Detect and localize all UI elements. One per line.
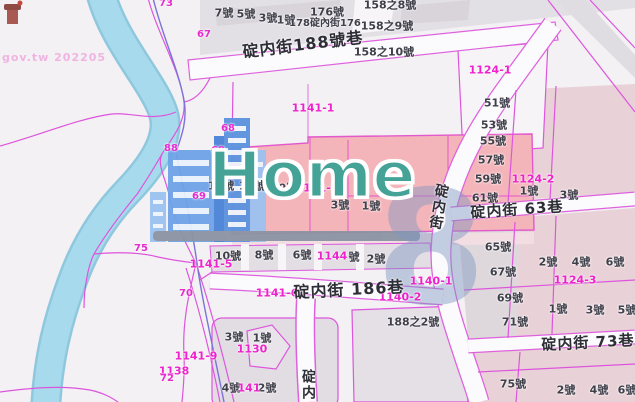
- logo-chimney-icon: [0, 0, 26, 28]
- road-number-label: 70: [179, 289, 193, 299]
- house-number-label: 158之8號: [364, 0, 417, 11]
- house-number-label: 3號: [259, 13, 278, 24]
- gov-attribution-watermark: gov.tw 202205: [2, 51, 106, 64]
- house-number-label: 8號: [255, 250, 274, 261]
- house-number-label: 55號: [480, 136, 506, 147]
- house-number-label: 3號: [225, 332, 244, 343]
- house-number-label: 3號: [586, 305, 605, 316]
- house-number-label: 1號: [520, 186, 539, 197]
- house-number-label: 2號: [557, 385, 576, 396]
- street-name-label: 碇内街 63巷: [470, 199, 564, 220]
- house-number-label: 6號: [618, 385, 635, 396]
- parcel-number-label: 1144: [317, 251, 348, 262]
- house-number-label: 59號: [475, 174, 501, 185]
- house-number-label: 5號: [618, 305, 635, 316]
- road-number-label: 68: [221, 124, 235, 134]
- house-number-label: 71號: [502, 317, 528, 328]
- house-number-label: 188之2號: [387, 317, 440, 328]
- watermark-brand-text: Home: [208, 144, 416, 208]
- road-number-label: 69: [192, 192, 206, 202]
- house-number-label: 7號: [215, 8, 234, 19]
- house-number-label: 6號: [606, 257, 625, 268]
- parcel-number-label: 1124-3: [554, 275, 597, 286]
- house-number-label: 57號: [478, 155, 504, 166]
- road-number-label: 67: [197, 30, 211, 40]
- house-number-label: 69號: [497, 293, 523, 304]
- parcel-number-label: 1141-9: [175, 351, 218, 362]
- road-number-label: 88: [164, 144, 178, 154]
- house-number-label: 5號: [237, 9, 256, 20]
- house-number-label: 75號: [500, 379, 526, 390]
- house-number-label: 號: [349, 252, 360, 263]
- parcel-number-label: 1130: [237, 344, 268, 355]
- house-number-label: 51號: [484, 98, 510, 109]
- cadastral-map-canvas[interactable]: 8 7號5號3號1號176號178碇內街176158之8號158之9號158之1…: [0, 0, 635, 402]
- street-name-label: 碇内: [301, 369, 315, 401]
- house-number-label: 178碇內街176: [289, 19, 361, 29]
- house-number-label: 67號: [490, 267, 516, 278]
- house-number-label: 158之9號: [361, 21, 414, 32]
- parcel-number-label: 1124-2: [512, 174, 555, 185]
- street-name-label: 碇内街: [427, 182, 449, 232]
- road-number-label: 72: [160, 374, 174, 384]
- road-number-label: 73: [159, 0, 173, 9]
- parcel-number-label: 1141-1: [292, 103, 335, 114]
- house-number-label: 6號: [293, 250, 312, 261]
- parcel-number-label: 1124-1: [469, 65, 512, 76]
- road-number-label: 75: [134, 244, 148, 254]
- house-number-label: 4號: [572, 257, 591, 268]
- house-number-label: 2號: [367, 254, 386, 265]
- parcel-number-label: 1141-6: [256, 288, 299, 299]
- parcel-number-label: 1140-1: [410, 276, 453, 287]
- house-number-label: 158之10號: [354, 47, 414, 58]
- parcel-number-label: 1141-5: [190, 259, 233, 270]
- house-number-label: 65號: [485, 242, 511, 253]
- street-name-label: 碇内街188號巷: [242, 30, 364, 61]
- house-number-label: 4號: [590, 385, 609, 396]
- house-number-label: 1號: [549, 304, 568, 315]
- house-number-label: 2號: [539, 257, 558, 268]
- parcel-number-label: 141: [238, 383, 261, 394]
- house-number-label: 53號: [481, 120, 507, 131]
- street-name-label: 碇内街 73巷: [541, 333, 635, 353]
- house-number-label: 176號: [310, 7, 344, 18]
